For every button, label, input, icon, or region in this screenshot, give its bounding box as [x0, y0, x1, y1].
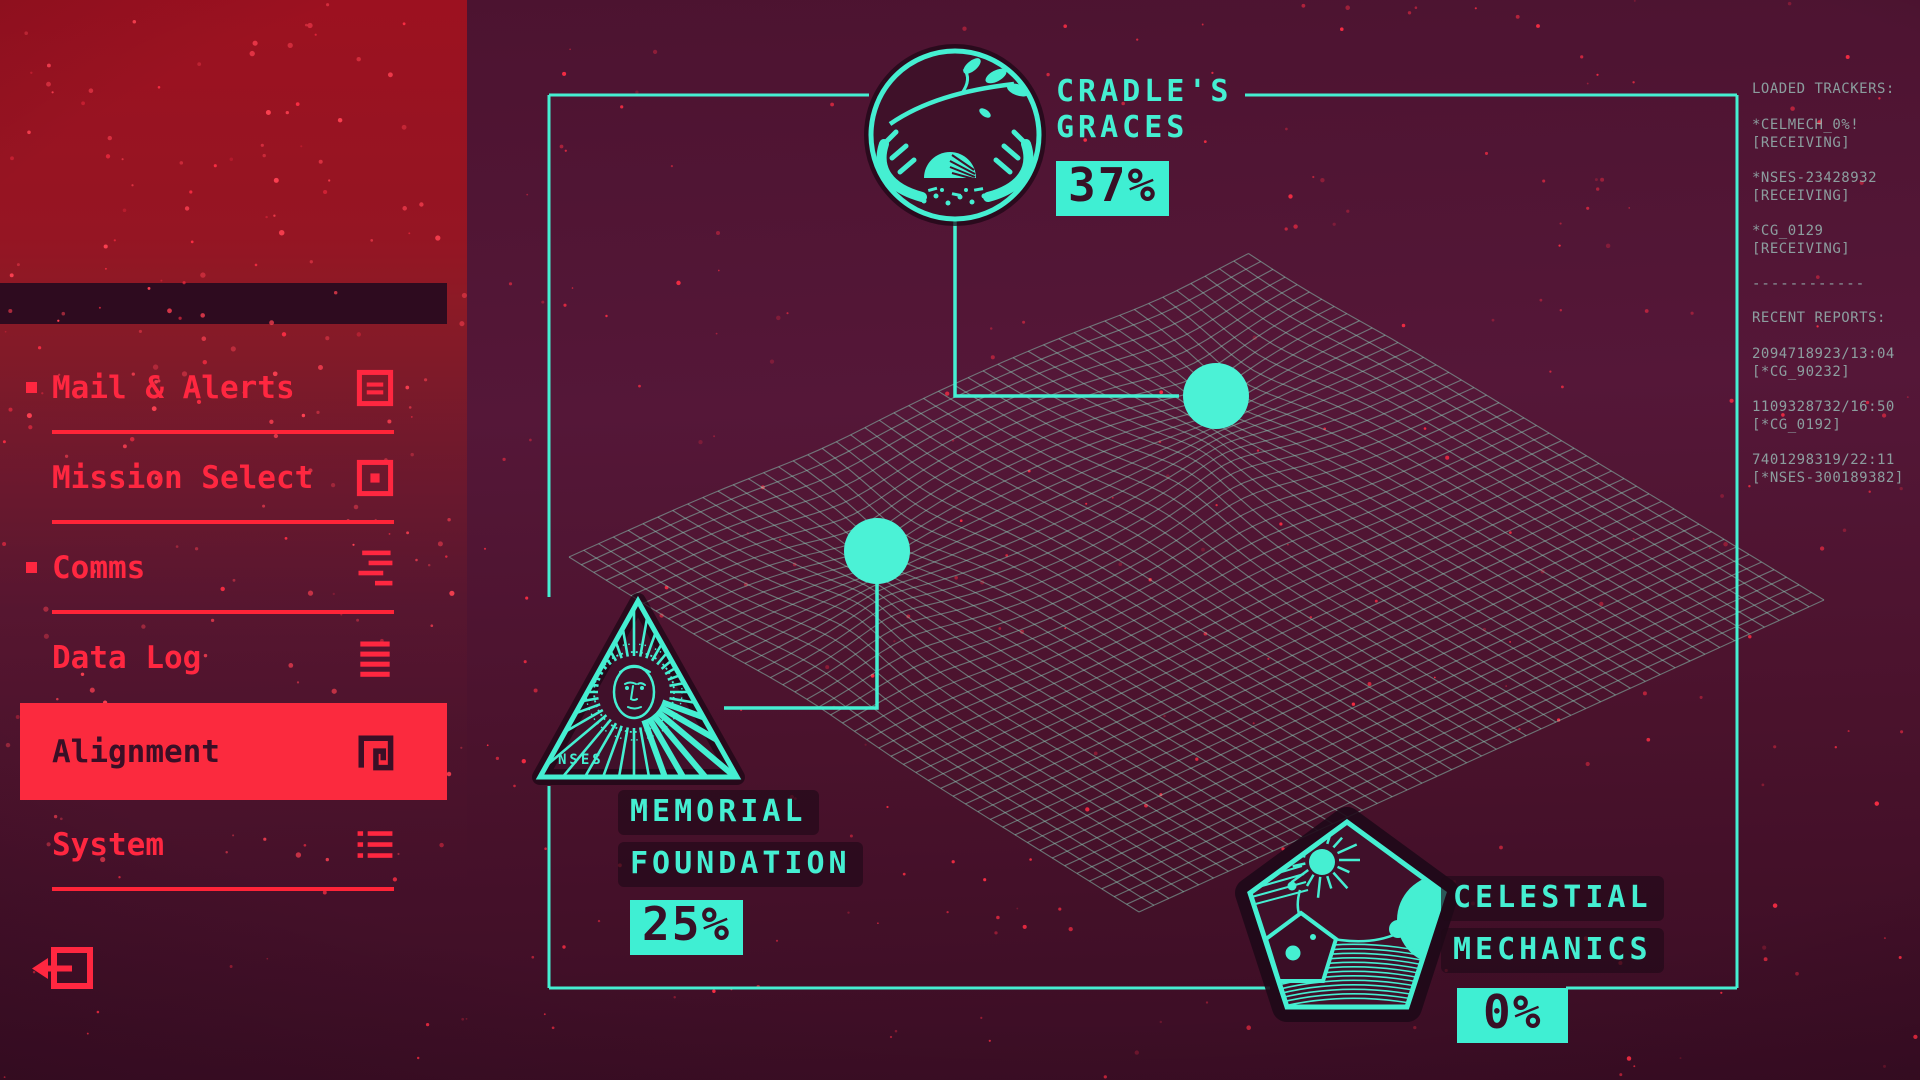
data-log-icon — [353, 636, 397, 680]
logout-button[interactable] — [28, 942, 96, 994]
tracker-entry: *CELMECH_0%! [RECEIVING] — [1752, 116, 1920, 152]
tracker-panel: LOADED TRACKERS: *CELMECH_0%! [RECEIVING… — [1752, 80, 1920, 504]
tracker-id: *CG_0129 — [1752, 222, 1920, 240]
sidebar-item-data-log[interactable]: Data Log — [0, 613, 447, 703]
system-icon — [353, 823, 397, 867]
tracker-status: [RECEIVING] — [1752, 134, 1920, 152]
faction-name-line: MEMORIAL — [618, 790, 819, 835]
sidebar-item-label: System — [52, 827, 164, 863]
report-source: [*NSES-300189382] — [1752, 469, 1920, 487]
tracker-entry: *CG_0129 [RECEIVING] — [1752, 222, 1920, 258]
alignment-dot-memorial — [844, 518, 910, 584]
faction-label-celestial-mechanics: CELESTIAL MECHANICS 0% — [1441, 876, 1664, 1043]
report-id: 1109328732/16:50 — [1752, 398, 1920, 416]
faction-percent-badge: 25% — [630, 900, 743, 955]
mission-select-icon — [353, 456, 397, 500]
faction-name-line: GRACES — [1056, 110, 1233, 146]
alignment-icon — [353, 730, 397, 774]
tracker-entry: *NSES-23428932 [RECEIVING] — [1752, 169, 1920, 205]
mail-icon — [353, 366, 397, 410]
sidebar-item-label: Data Log — [52, 640, 201, 676]
tracker-id: *CELMECH_0%! — [1752, 116, 1920, 134]
report-source: [*CG_90232] — [1752, 363, 1920, 381]
notification-bullet — [26, 562, 37, 573]
sidebar-item-mail-alerts[interactable]: Mail & Alerts — [0, 343, 447, 433]
faction-label-memorial-foundation: MEMORIAL FOUNDATION 25% — [618, 790, 863, 955]
sidebar-item-system[interactable]: System — [0, 800, 447, 890]
faction-name-line: CRADLE'S — [1056, 74, 1233, 110]
logout-icon — [28, 942, 96, 994]
recent-reports-title: RECENT REPORTS: — [1752, 309, 1920, 327]
report-entry: 2094718923/13:04 [*CG_90232] — [1752, 345, 1920, 381]
report-id: 7401298319/22:11 — [1752, 451, 1920, 469]
faction-name-line: FOUNDATION — [618, 842, 863, 887]
loaded-trackers-title: LOADED TRACKERS: — [1752, 80, 1920, 98]
alignment-screen: NSES Mail & Al — [0, 0, 1920, 1080]
alignment-dot-cradle — [1183, 363, 1249, 429]
cradle-connector — [955, 205, 1179, 396]
faction-label-cradles-graces: CRADLE'S GRACES 37% — [1056, 74, 1233, 216]
sidebar-item-comms[interactable]: Comms — [0, 523, 447, 613]
tracker-status: [RECEIVING] — [1752, 240, 1920, 258]
sidebar-item-label: Mail & Alerts — [52, 370, 295, 406]
cradle-emblem[interactable] — [871, 51, 1039, 219]
faction-name-line: MECHANICS — [1441, 928, 1664, 973]
memorial-emblem-text: NSES — [558, 752, 604, 768]
sidebar-item-mission-select[interactable]: Mission Select — [0, 433, 447, 523]
sidebar-item-label: Mission Select — [52, 460, 313, 496]
connector-lines — [724, 205, 1179, 708]
sidebar-item-label: Alignment — [52, 734, 220, 770]
notification-bullet — [26, 382, 37, 393]
panel-divider: ------------ — [1752, 275, 1920, 293]
report-entry: 7401298319/22:11 [*NSES-300189382] — [1752, 451, 1920, 487]
report-entry: 1109328732/16:50 [*CG_0192] — [1752, 398, 1920, 434]
faction-percent-badge: 37% — [1056, 161, 1169, 216]
comms-icon — [353, 546, 397, 590]
report-source: [*CG_0192] — [1752, 416, 1920, 434]
faction-name-line: CELESTIAL — [1441, 876, 1664, 921]
sidebar-menu: Mail & Alerts Mission Select Comms — [0, 343, 447, 890]
sidebar-item-alignment[interactable]: Alignment — [0, 703, 447, 800]
faction-percent-badge: 0% — [1457, 988, 1568, 1043]
report-id: 2094718923/13:04 — [1752, 345, 1920, 363]
tracker-id: *NSES-23428932 — [1752, 169, 1920, 187]
tracker-status: [RECEIVING] — [1752, 187, 1920, 205]
sidebar-item-label: Comms — [52, 550, 145, 586]
